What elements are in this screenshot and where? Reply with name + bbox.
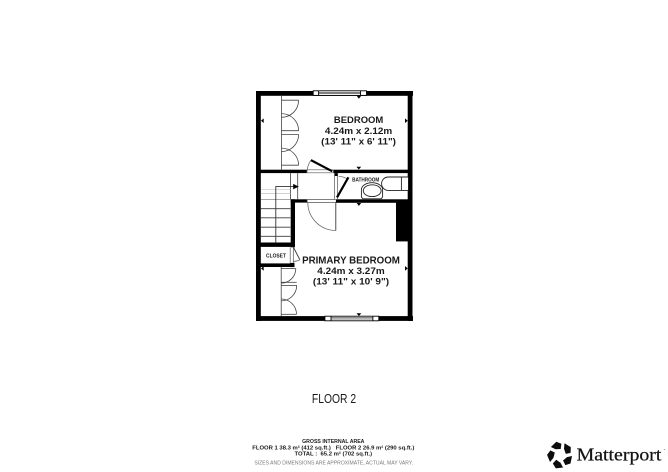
svg-text:FLOOR 2: FLOOR 2 (312, 391, 356, 406)
svg-text:CLOSET: CLOSET (266, 253, 286, 259)
svg-text:PRIMARY BEDROOM: PRIMARY BEDROOM (302, 256, 400, 267)
svg-text:Matterport: Matterport (577, 445, 662, 465)
svg-text:SIZES AND DIMENSIONS ARE APPRO: SIZES AND DIMENSIONS ARE APPROXIMATE, AC… (254, 461, 413, 467)
svg-text:FLOOR 1 38.3 m² (412 sq.ft.): FLOOR 1 38.3 m² (412 sq.ft.) FLOOR 2 26.… (252, 444, 414, 451)
svg-text:4.24m x 2.12m: 4.24m x 2.12m (325, 126, 392, 137)
svg-text:(13' 11" x 6' 11"): (13' 11" x 6' 11") (321, 137, 396, 148)
svg-text:TOTAL : 65.2 m² (702 sq.ft.): TOTAL : 65.2 m² (702 sq.ft.) (295, 451, 373, 458)
svg-text:´: ´ (663, 448, 665, 456)
svg-text:BEDROOM: BEDROOM (334, 115, 383, 126)
svg-text:4.24m x 3.27m: 4.24m x 3.27m (317, 266, 384, 277)
svg-text:BATHROOM: BATHROOM (352, 177, 379, 183)
svg-text:(13' 11" x 10' 9"): (13' 11" x 10' 9") (313, 277, 389, 288)
svg-text:GROSS INTERNAL AREA: GROSS INTERNAL AREA (302, 439, 364, 445)
